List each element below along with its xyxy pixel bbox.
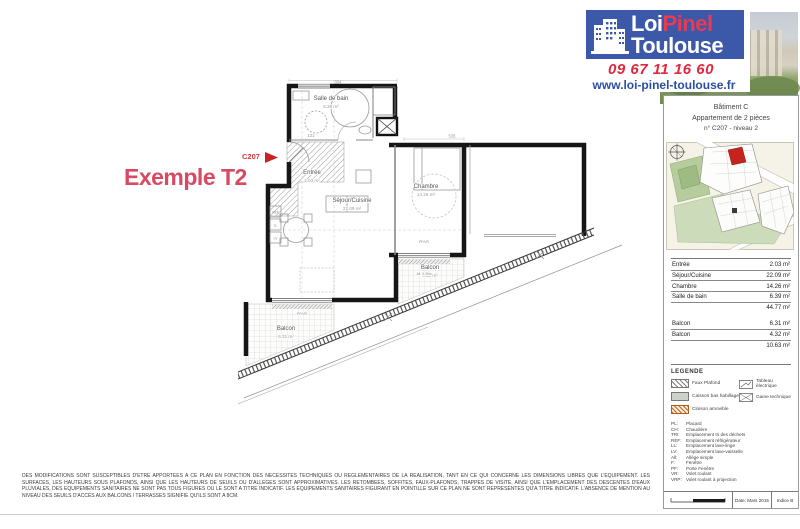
tableau-electrique-icon — [739, 380, 753, 389]
area-chambre: 14.26 m² — [417, 192, 436, 197]
table-row: Balcon6.31 m² — [671, 319, 791, 330]
caisson-swatch — [671, 392, 689, 401]
panel-footer: Date: Mars 2015 Indice B — [664, 491, 798, 508]
abbrev-row: VRP:Volet roulant à projection — [671, 477, 791, 483]
unit-arrow-icon — [265, 152, 278, 163]
table-row: Séjour/Cuisine22.09 m² — [671, 271, 791, 282]
table-row: Chambre14.26 m² — [671, 281, 791, 292]
building-name: Bâtiment C — [664, 102, 798, 113]
room-balcon-sejour: Balcon — [277, 326, 295, 332]
room-salle-de-bain: Salle de bain — [314, 96, 349, 102]
apartment-type: Appartement de 2 pièces — [664, 113, 798, 124]
table-row: Entrée2.03 m² — [671, 260, 791, 271]
room-balcon-chambre: Balcon — [421, 265, 439, 271]
abbreviation-list: PL:Placard CH:Chaudière TRI:Emplacement … — [671, 421, 791, 483]
logo-word-toulouse: Toulouse — [631, 35, 723, 57]
page-title: Exemple T2 — [124, 164, 247, 191]
phone-number[interactable]: 09 67 11 16 60 — [578, 61, 744, 78]
kitchen-ref-label: REF — [272, 211, 278, 215]
dim-121: 121 — [308, 133, 316, 138]
logo-word-loi: Loi — [631, 11, 663, 36]
dim-535: 535 — [449, 134, 457, 139]
table-row: Balcon4.32 m² — [671, 330, 791, 341]
room-chambre: Chambre — [414, 184, 439, 190]
disclaimer-text: DES MODIFICATIONS SONT SUSCEPTIBLES D'ET… — [22, 473, 650, 500]
surface-total: 44.77 m² — [671, 303, 791, 316]
dim-354: 354 — [335, 79, 343, 84]
unit-header: Bâtiment C Appartement de 2 pièces n° C2… — [664, 102, 798, 135]
info-panel: Bâtiment C Appartement de 2 pièces n° C2… — [663, 95, 799, 509]
bottom-divider — [0, 514, 800, 515]
legend-item: Gaine technique — [739, 393, 791, 402]
legend-title: LEGENDE — [671, 369, 791, 375]
room-entree: Entrée — [303, 170, 321, 176]
unit-tag: C207 — [242, 152, 260, 161]
legend-item: Tableau électrique — [739, 379, 791, 389]
unit-number: n° C207 - niveau 2 — [664, 124, 798, 134]
legend-section: LEGENDE Faux Plafond Caisson bas habilla… — [671, 364, 791, 483]
legend-item: Faux Plafond — [671, 379, 739, 388]
area-balcon-sejour: 6.31 m² — [278, 334, 294, 339]
plan-index: Indice B — [771, 492, 798, 508]
area-entree: 2.03 m² — [304, 178, 320, 183]
area-sejour: 22.09 m² — [343, 206, 362, 211]
kitchen-ll-label: LL — [274, 224, 278, 228]
kitchen-lv-label: LV — [274, 237, 279, 241]
table-row: Salle de bain6.39 m² — [671, 292, 791, 303]
room-sejour: Séjour/Cuisine — [332, 198, 372, 204]
plan-sheet: LoiPinel Toulouse 09 67 11 16 60 www.loi… — [0, 0, 800, 529]
faux-plafond-swatch — [671, 379, 689, 388]
plan-date: Date: Mars 2015 — [732, 492, 771, 508]
window-sill-note: All. 0.35m — [416, 272, 431, 276]
logo-word-pinel: Pinel — [663, 11, 713, 36]
window-note: PF/VR — [419, 240, 430, 244]
logo-wordmark: LoiPinel Toulouse — [631, 13, 723, 57]
building-icon — [591, 15, 629, 55]
scale-bar — [664, 492, 732, 508]
gaine-technique-icon — [739, 393, 753, 402]
balcony-total: 10.63 m² — [671, 341, 791, 354]
legend-item: Caisson bas habillage — [671, 392, 739, 401]
logo: LoiPinel Toulouse — [586, 10, 744, 59]
cloison-swatch — [671, 405, 689, 414]
window-note: PF/VR — [297, 312, 308, 316]
legend-item: Cloison amovible — [671, 405, 739, 414]
floor-plan: 354 535 121 — [238, 78, 638, 408]
gaine-technique-box — [377, 118, 397, 135]
site-plan-map — [666, 142, 794, 250]
area-salle-de-bain: 6.39 m² — [323, 104, 339, 109]
surface-table: Entrée2.03 m² Séjour/Cuisine22.09 m² Cha… — [671, 258, 791, 353]
